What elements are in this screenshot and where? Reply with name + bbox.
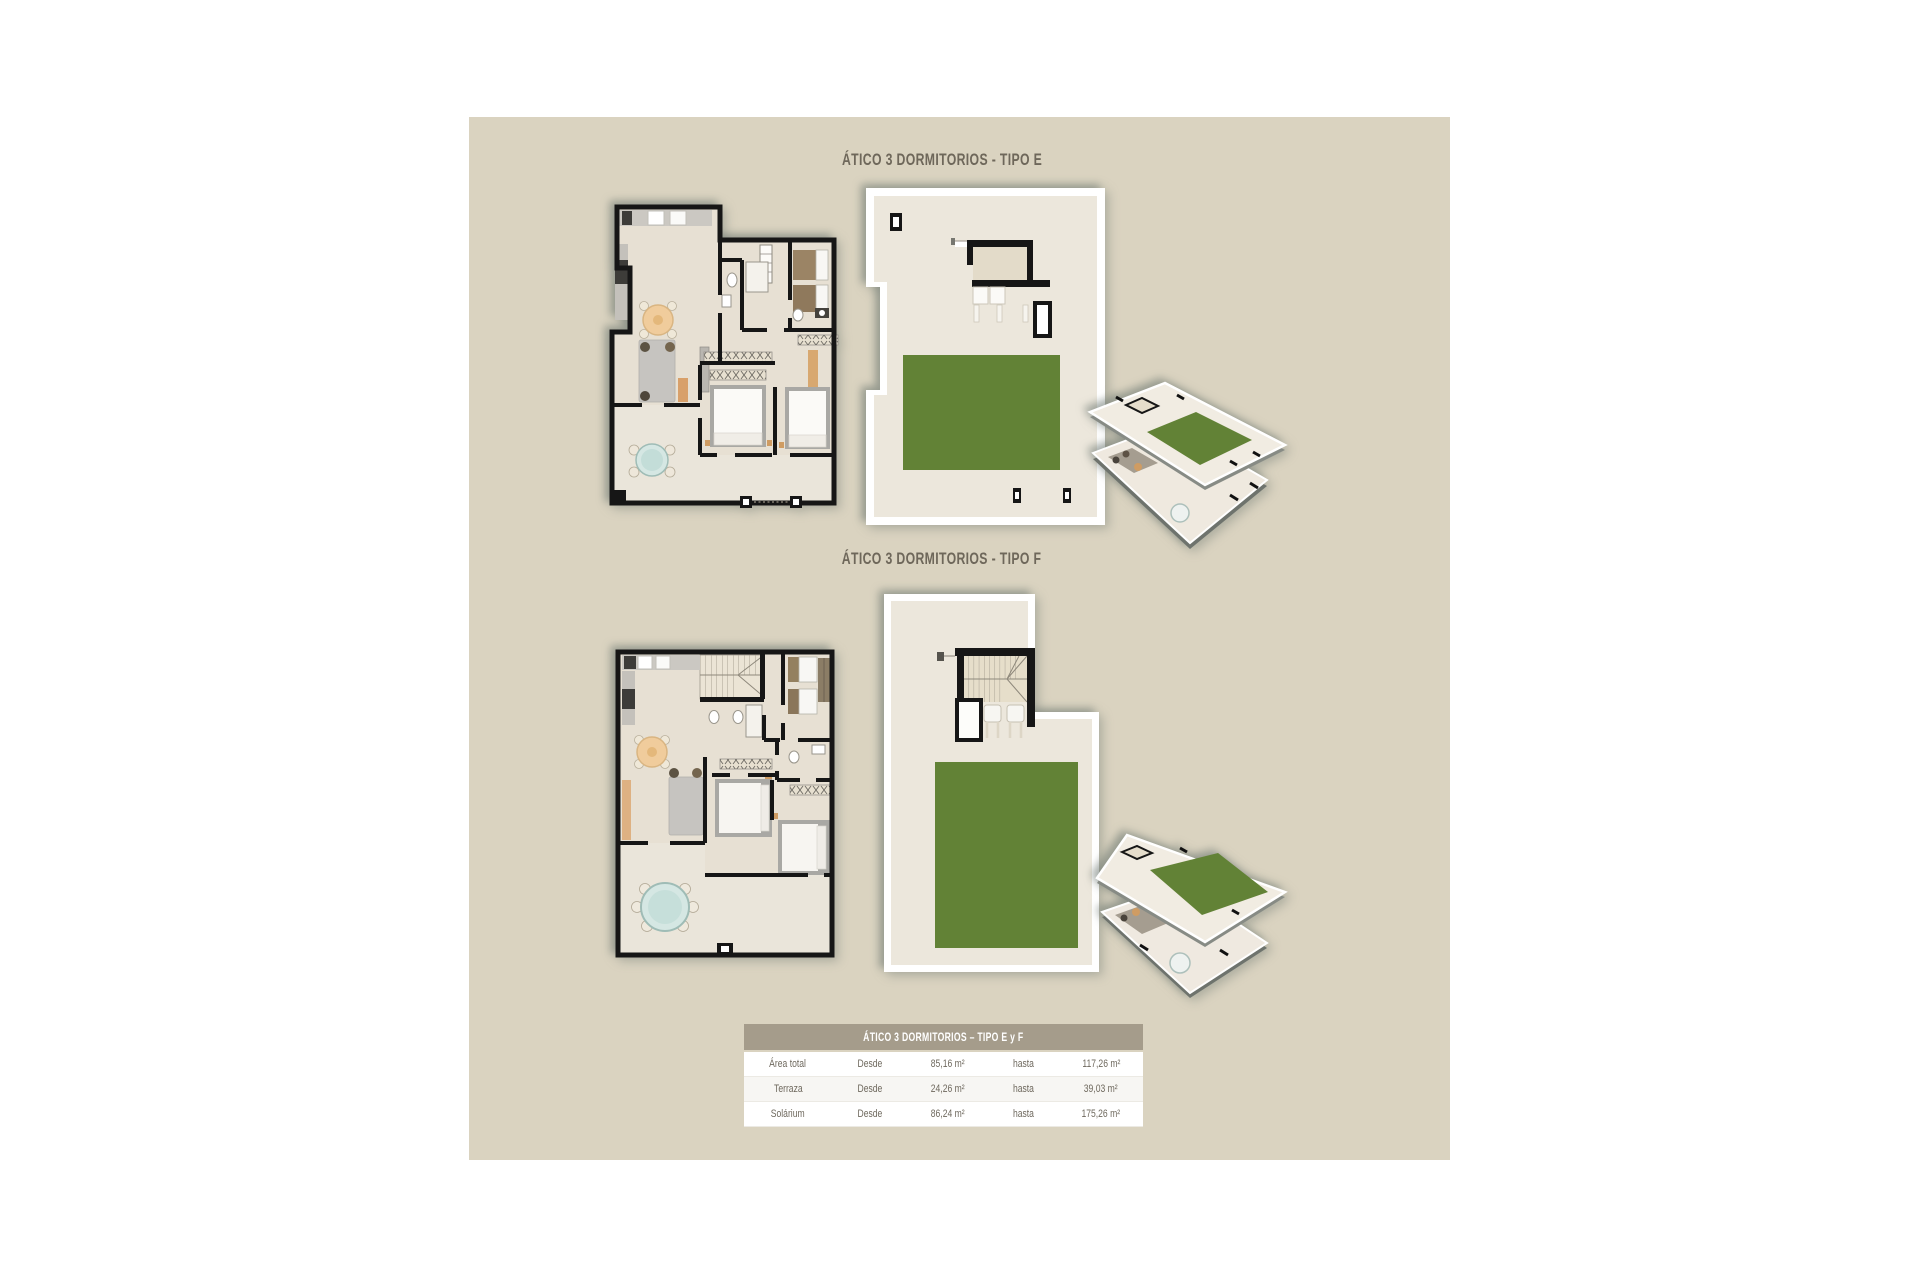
solarium-plan-tipo-e [863, 185, 1108, 528]
exploded-view-tipo-e [1080, 375, 1315, 565]
area-table-header: ÁTICO 3 DORMITORIOS – TIPO E y F [744, 1024, 1143, 1050]
terrace-doors [717, 943, 733, 955]
table-row-area-total: Área total Desde 85,16 m² hasta 117,26 m… [744, 1052, 1143, 1077]
lawn [935, 762, 1078, 948]
roof-closet [957, 700, 981, 740]
table-row-solarium: Solárium Desde 86,24 m² hasta 175,26 m² [744, 1102, 1143, 1127]
floor-plan-tipo-f [612, 645, 840, 965]
section-title-tipo-e: ÁTICO 3 DORMITORIOS - TIPO E [469, 150, 1415, 170]
terrace-furniture [629, 444, 675, 477]
table-row-terraza: Terraza Desde 24,26 m² hasta 39,03 m² [744, 1077, 1143, 1102]
row-to-label: hasta [1013, 1108, 1034, 1120]
staircase [700, 652, 765, 702]
section-title-tipo-e-text: ÁTICO 3 DORMITORIOS - TIPO E [842, 150, 1042, 170]
roof-access-door [1035, 303, 1050, 336]
floor-plan-tipo-e [612, 200, 838, 505]
brochure-panel: ÁTICO 3 DORMITORIOS - TIPO E [469, 117, 1450, 1160]
area-table-title: ÁTICO 3 DORMITORIOS – TIPO E y F [863, 1030, 1023, 1044]
row-from-label: Desde [857, 1058, 882, 1070]
row-from-value: 86,24 m² [931, 1108, 965, 1120]
dining-table [640, 302, 677, 339]
section-title-tipo-f-text: ÁTICO 3 DORMITORIOS - TIPO F [842, 549, 1042, 569]
row-label: Solárium [771, 1108, 805, 1120]
terrace-furniture [632, 883, 699, 932]
row-from-value: 24,26 m² [931, 1083, 965, 1095]
row-from-label: Desde [857, 1108, 882, 1120]
dining-table [635, 736, 670, 769]
row-to-value: 117,26 m² [1082, 1058, 1120, 1070]
row-to-value: 39,03 m² [1084, 1083, 1118, 1095]
row-to-value: 175,26 m² [1082, 1108, 1121, 1120]
section-title-tipo-f: ÁTICO 3 DORMITORIOS - TIPO F [469, 549, 1415, 569]
row-label: Terraza [774, 1083, 803, 1095]
lawn [903, 355, 1060, 470]
row-label: Área total [770, 1058, 807, 1070]
area-table: ÁTICO 3 DORMITORIOS – TIPO E y F Área to… [744, 1024, 1143, 1127]
row-from-label: Desde [857, 1083, 882, 1095]
exploded-view-tipo-f [1080, 830, 1315, 1015]
solarium-plan-tipo-f [880, 588, 1104, 978]
row-from-value: 85,16 m² [931, 1058, 965, 1070]
row-to-label: hasta [1013, 1058, 1034, 1070]
row-to-label: hasta [1013, 1083, 1034, 1095]
page: ÁTICO 3 DORMITORIOS - TIPO E [0, 0, 1920, 1280]
